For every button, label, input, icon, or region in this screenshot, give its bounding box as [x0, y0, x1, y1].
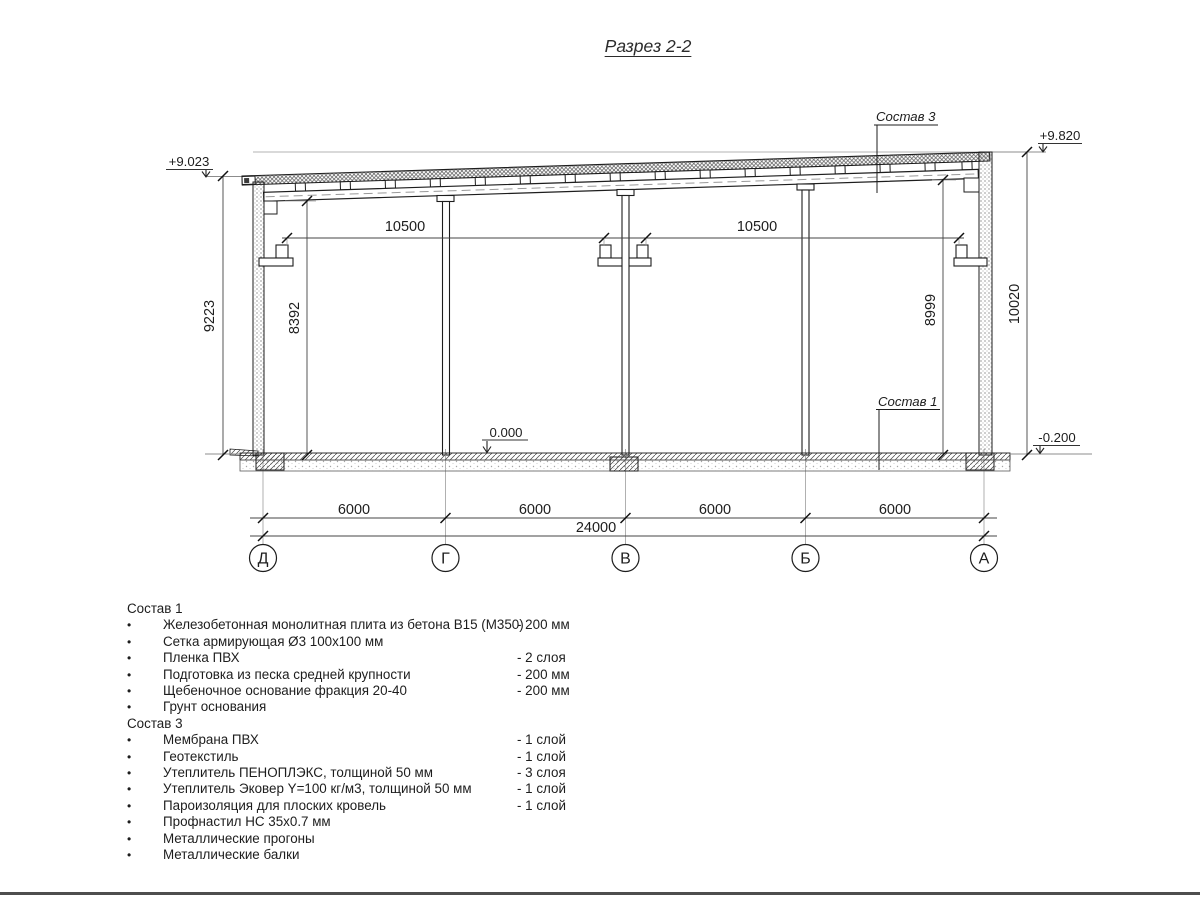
bullet-icon: • — [127, 781, 139, 797]
page-bottom-border — [0, 892, 1200, 895]
list-item: • Сетка армирующая Ø3 100х100 мм — [127, 634, 607, 650]
axis-label-d: Д — [258, 551, 269, 568]
svg-text:Состав 3: Состав 3 — [876, 109, 936, 124]
elevation-ground: -0.200 — [1033, 430, 1080, 454]
list-item: • Пароизоляция для плоских кровель - 1 с… — [127, 798, 607, 814]
dim-bay-1: 6000 — [338, 502, 370, 518]
axis-label-a: А — [979, 551, 990, 568]
sostav1-title: Состав 1 — [127, 601, 607, 617]
svg-text:Состав 1: Состав 1 — [878, 394, 938, 409]
axis-label-g: Г — [441, 551, 450, 568]
list-item: • Железобетонная монолитная плита из бет… — [127, 617, 607, 633]
bullet-icon: • — [127, 634, 139, 650]
list-item: • Металлические прогоны — [127, 831, 607, 847]
axis-bubbles: Д Г В Б А — [250, 545, 998, 572]
dim-bay-4: 6000 — [879, 502, 911, 518]
list-item: • Мембрана ПВХ - 1 слой — [127, 732, 607, 748]
axis-label-v: В — [620, 551, 631, 568]
bay-dimension-chain: 6000 6000 6000 6000 24000 — [250, 502, 997, 541]
bullet-icon: • — [127, 667, 139, 683]
sostav3-title: Состав 3 — [127, 716, 607, 732]
dim-left-outer: 9223 — [202, 300, 218, 332]
axis-label-b: Б — [800, 551, 811, 568]
bullet-icon: • — [127, 831, 139, 847]
list-item: • Утеплитель Эковер Y=100 кг/м3, толщино… — [127, 781, 607, 797]
bullet-icon: • — [127, 683, 139, 699]
bullet-icon: • — [127, 749, 139, 765]
list-item: • Грунт основания — [127, 699, 607, 715]
list-item: • Щебеночное основание фракция 20-40 - 2… — [127, 683, 607, 699]
dim-span-right: 10500 — [737, 219, 777, 235]
left-wall — [253, 182, 277, 455]
list-item: • Подготовка из песка средней крупности … — [127, 667, 607, 683]
drawing-sheet: Разрез 2-2 — [0, 0, 1200, 900]
svg-text:-0.200: -0.200 — [1038, 430, 1075, 445]
svg-text:+9.023: +9.023 — [169, 154, 210, 169]
dim-right-outer: 10020 — [1007, 284, 1023, 324]
dim-bay-3: 6000 — [699, 502, 731, 518]
bullet-icon: • — [127, 765, 139, 781]
svg-text:+9.820: +9.820 — [1040, 128, 1081, 143]
dim-total: 24000 — [576, 520, 616, 536]
elevation-top-right: +9.820 — [1038, 128, 1082, 152]
bullet-icon: • — [127, 650, 139, 666]
bullet-icon: • — [127, 617, 139, 633]
dim-bay-2: 6000 — [519, 502, 551, 518]
list-item: • Профнастил НС 35х0.7 мм — [127, 814, 607, 830]
bullet-icon: • — [127, 732, 139, 748]
column-b — [797, 184, 814, 455]
bullet-icon: • — [127, 798, 139, 814]
bullet-icon: • — [127, 847, 139, 863]
bullet-icon: • — [127, 814, 139, 830]
dim-left-inner: 8392 — [287, 302, 303, 334]
column-g — [437, 196, 454, 456]
list-item: • Геотекстиль - 1 слой — [127, 749, 607, 765]
bullet-icon: • — [127, 699, 139, 715]
dim-span-left: 10500 — [385, 219, 425, 235]
list-item: • Металлические балки — [127, 847, 607, 863]
column-v — [617, 190, 634, 456]
elevation-top-left: +9.023 — [166, 154, 213, 177]
dim-right-inner: 8999 — [923, 294, 939, 326]
elevation-floor: 0.000 — [482, 425, 528, 453]
right-wall — [964, 152, 992, 455]
svg-text:0.000: 0.000 — [489, 425, 522, 440]
list-item: • Утеплитель ПЕНОПЛЭКС, толщиной 50 мм -… — [127, 765, 607, 781]
list-item: • Пленка ПВХ - 2 слоя — [127, 650, 607, 666]
floor-slab — [205, 449, 1092, 471]
composition-lists: Состав 1 • Железобетонная монолитная пли… — [127, 601, 607, 863]
roof-assembly — [242, 152, 990, 202]
